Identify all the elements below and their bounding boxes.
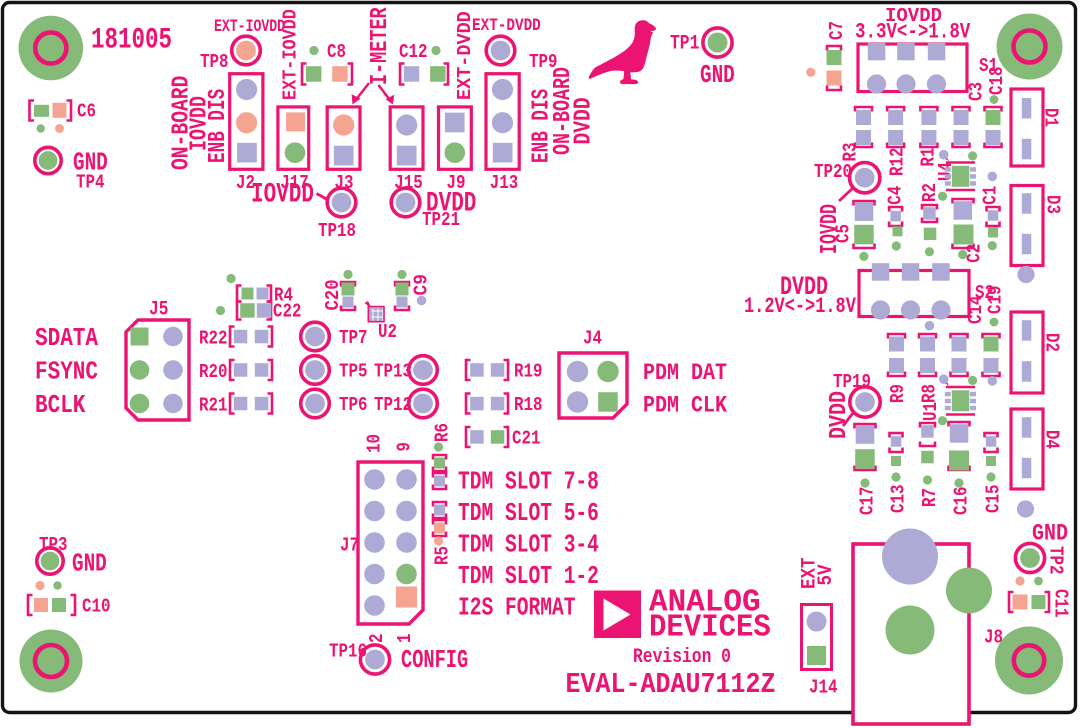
svg-text:J14: J14 [809, 677, 837, 699]
svg-text:R21: R21 [199, 395, 227, 417]
svg-text:J7: J7 [340, 535, 359, 557]
svg-text:R6: R6 [432, 423, 454, 442]
svg-text:R18: R18 [514, 395, 542, 417]
svg-text:TP20: TP20 [814, 162, 852, 184]
svg-text:J4: J4 [583, 328, 602, 350]
svg-text:C2: C2 [964, 244, 986, 263]
svg-text:C18: C18 [987, 67, 1009, 95]
svg-text:D3: D3 [1041, 195, 1063, 214]
svg-text:U2: U2 [378, 322, 397, 344]
svg-text:9: 9 [394, 442, 416, 451]
svg-text:I-METER: I-METER [367, 7, 394, 85]
svg-text:TDM SLOT 5-6: TDM SLOT 5-6 [458, 499, 599, 528]
svg-text:TP6: TP6 [339, 395, 367, 417]
svg-text:TP12: TP12 [374, 395, 412, 417]
svg-text:C6: C6 [77, 101, 96, 123]
svg-text:C9: C9 [411, 274, 433, 295]
svg-text:R3: R3 [840, 143, 862, 162]
svg-text:R8: R8 [919, 384, 941, 403]
svg-text:TP2: TP2 [1044, 546, 1066, 574]
svg-text:R2: R2 [920, 183, 942, 202]
svg-text:EVAL-ADAU7112Z: EVAL-ADAU7112Z [566, 668, 776, 701]
svg-text:IOVDD: IOVDD [817, 204, 844, 254]
svg-text:10: 10 [364, 434, 386, 453]
svg-text:GND: GND [1032, 520, 1068, 547]
svg-text:D4: D4 [1040, 430, 1062, 449]
svg-text:3.3V<->1.8V: 3.3V<->1.8V [855, 20, 970, 44]
svg-text:C11: C11 [1049, 589, 1071, 617]
svg-text:D1: D1 [1039, 108, 1061, 127]
svg-text:C12: C12 [399, 42, 427, 64]
svg-text:R20: R20 [199, 362, 227, 384]
svg-text:EXT-IOVDD: EXT-IOVDD [281, 9, 302, 100]
svg-text:DVDD: DVDD [825, 391, 852, 439]
svg-text:C21: C21 [512, 428, 540, 450]
svg-text:D2: D2 [1040, 333, 1062, 352]
svg-text:TDM SLOT 1-2: TDM SLOT 1-2 [458, 562, 599, 591]
svg-text:C14: C14 [966, 296, 988, 324]
svg-text:SDATA: SDATA [35, 325, 99, 353]
svg-text:R19: R19 [514, 361, 542, 383]
svg-text:FSYNC: FSYNC [35, 359, 98, 387]
svg-text:5V: 5V [814, 564, 837, 586]
svg-text:1.2V<->1.8V: 1.2V<->1.8V [744, 294, 856, 319]
svg-text:I2S FORMAT: I2S FORMAT [458, 593, 576, 622]
svg-text:TDM SLOT 3-4: TDM SLOT 3-4 [458, 530, 599, 559]
svg-text:TP4: TP4 [76, 172, 104, 194]
svg-text:DEVICES: DEVICES [649, 611, 771, 646]
svg-text:GND: GND [700, 61, 735, 90]
svg-text:R9: R9 [888, 384, 910, 403]
svg-text:IOVDD: IOVDD [251, 180, 314, 210]
svg-text:1: 1 [395, 634, 417, 643]
svg-text:TP8: TP8 [200, 52, 228, 74]
svg-text:J5: J5 [149, 298, 168, 321]
svg-text:R22: R22 [199, 328, 227, 350]
svg-text:C8: C8 [327, 42, 346, 64]
svg-text:C15: C15 [983, 485, 1005, 513]
svg-text:GND: GND [72, 549, 107, 578]
svg-text:TP19: TP19 [833, 372, 871, 394]
svg-text:EXT-IOVDD: EXT-IOVDD [214, 16, 285, 36]
svg-text:TP18: TP18 [318, 221, 356, 243]
svg-text:C1: C1 [980, 186, 1002, 205]
svg-text:J13: J13 [490, 173, 518, 195]
svg-text:C16: C16 [951, 487, 973, 515]
svg-text:C22: C22 [273, 301, 301, 323]
svg-text:181005: 181005 [91, 23, 172, 57]
svg-text:DVDD: DVDD [570, 97, 597, 144]
svg-text:C10: C10 [82, 596, 110, 618]
svg-text:R7: R7 [920, 488, 942, 507]
svg-text:TP1: TP1 [670, 33, 699, 55]
svg-text:TP5: TP5 [339, 361, 367, 383]
svg-text:TP7: TP7 [339, 328, 367, 350]
svg-text:C3: C3 [966, 82, 988, 101]
svg-text:C13: C13 [888, 485, 910, 513]
svg-text:TP21: TP21 [422, 210, 460, 232]
svg-text:EXT-DVDD: EXT-DVDD [472, 16, 541, 36]
svg-text:PDM DAT: PDM DAT [643, 360, 727, 387]
svg-text:C19: C19 [985, 286, 1007, 314]
svg-text:R12: R12 [887, 148, 909, 176]
svg-text:J8: J8 [984, 627, 1003, 649]
svg-text:BCLK: BCLK [35, 392, 86, 420]
svg-text:C17: C17 [857, 487, 879, 515]
svg-text:TP13: TP13 [374, 361, 412, 383]
svg-text:Revision 0: Revision 0 [633, 647, 731, 669]
svg-text:R5: R5 [432, 546, 454, 565]
svg-text:2: 2 [367, 634, 389, 643]
svg-text:PDM CLK: PDM CLK [643, 392, 728, 419]
svg-text:TDM SLOT 7-8: TDM SLOT 7-8 [458, 467, 599, 496]
svg-text:C7: C7 [827, 21, 849, 40]
svg-text:C4: C4 [885, 186, 907, 205]
svg-text:ENB DIS: ENB DIS [205, 89, 232, 163]
svg-text:CONFIG: CONFIG [401, 645, 468, 675]
